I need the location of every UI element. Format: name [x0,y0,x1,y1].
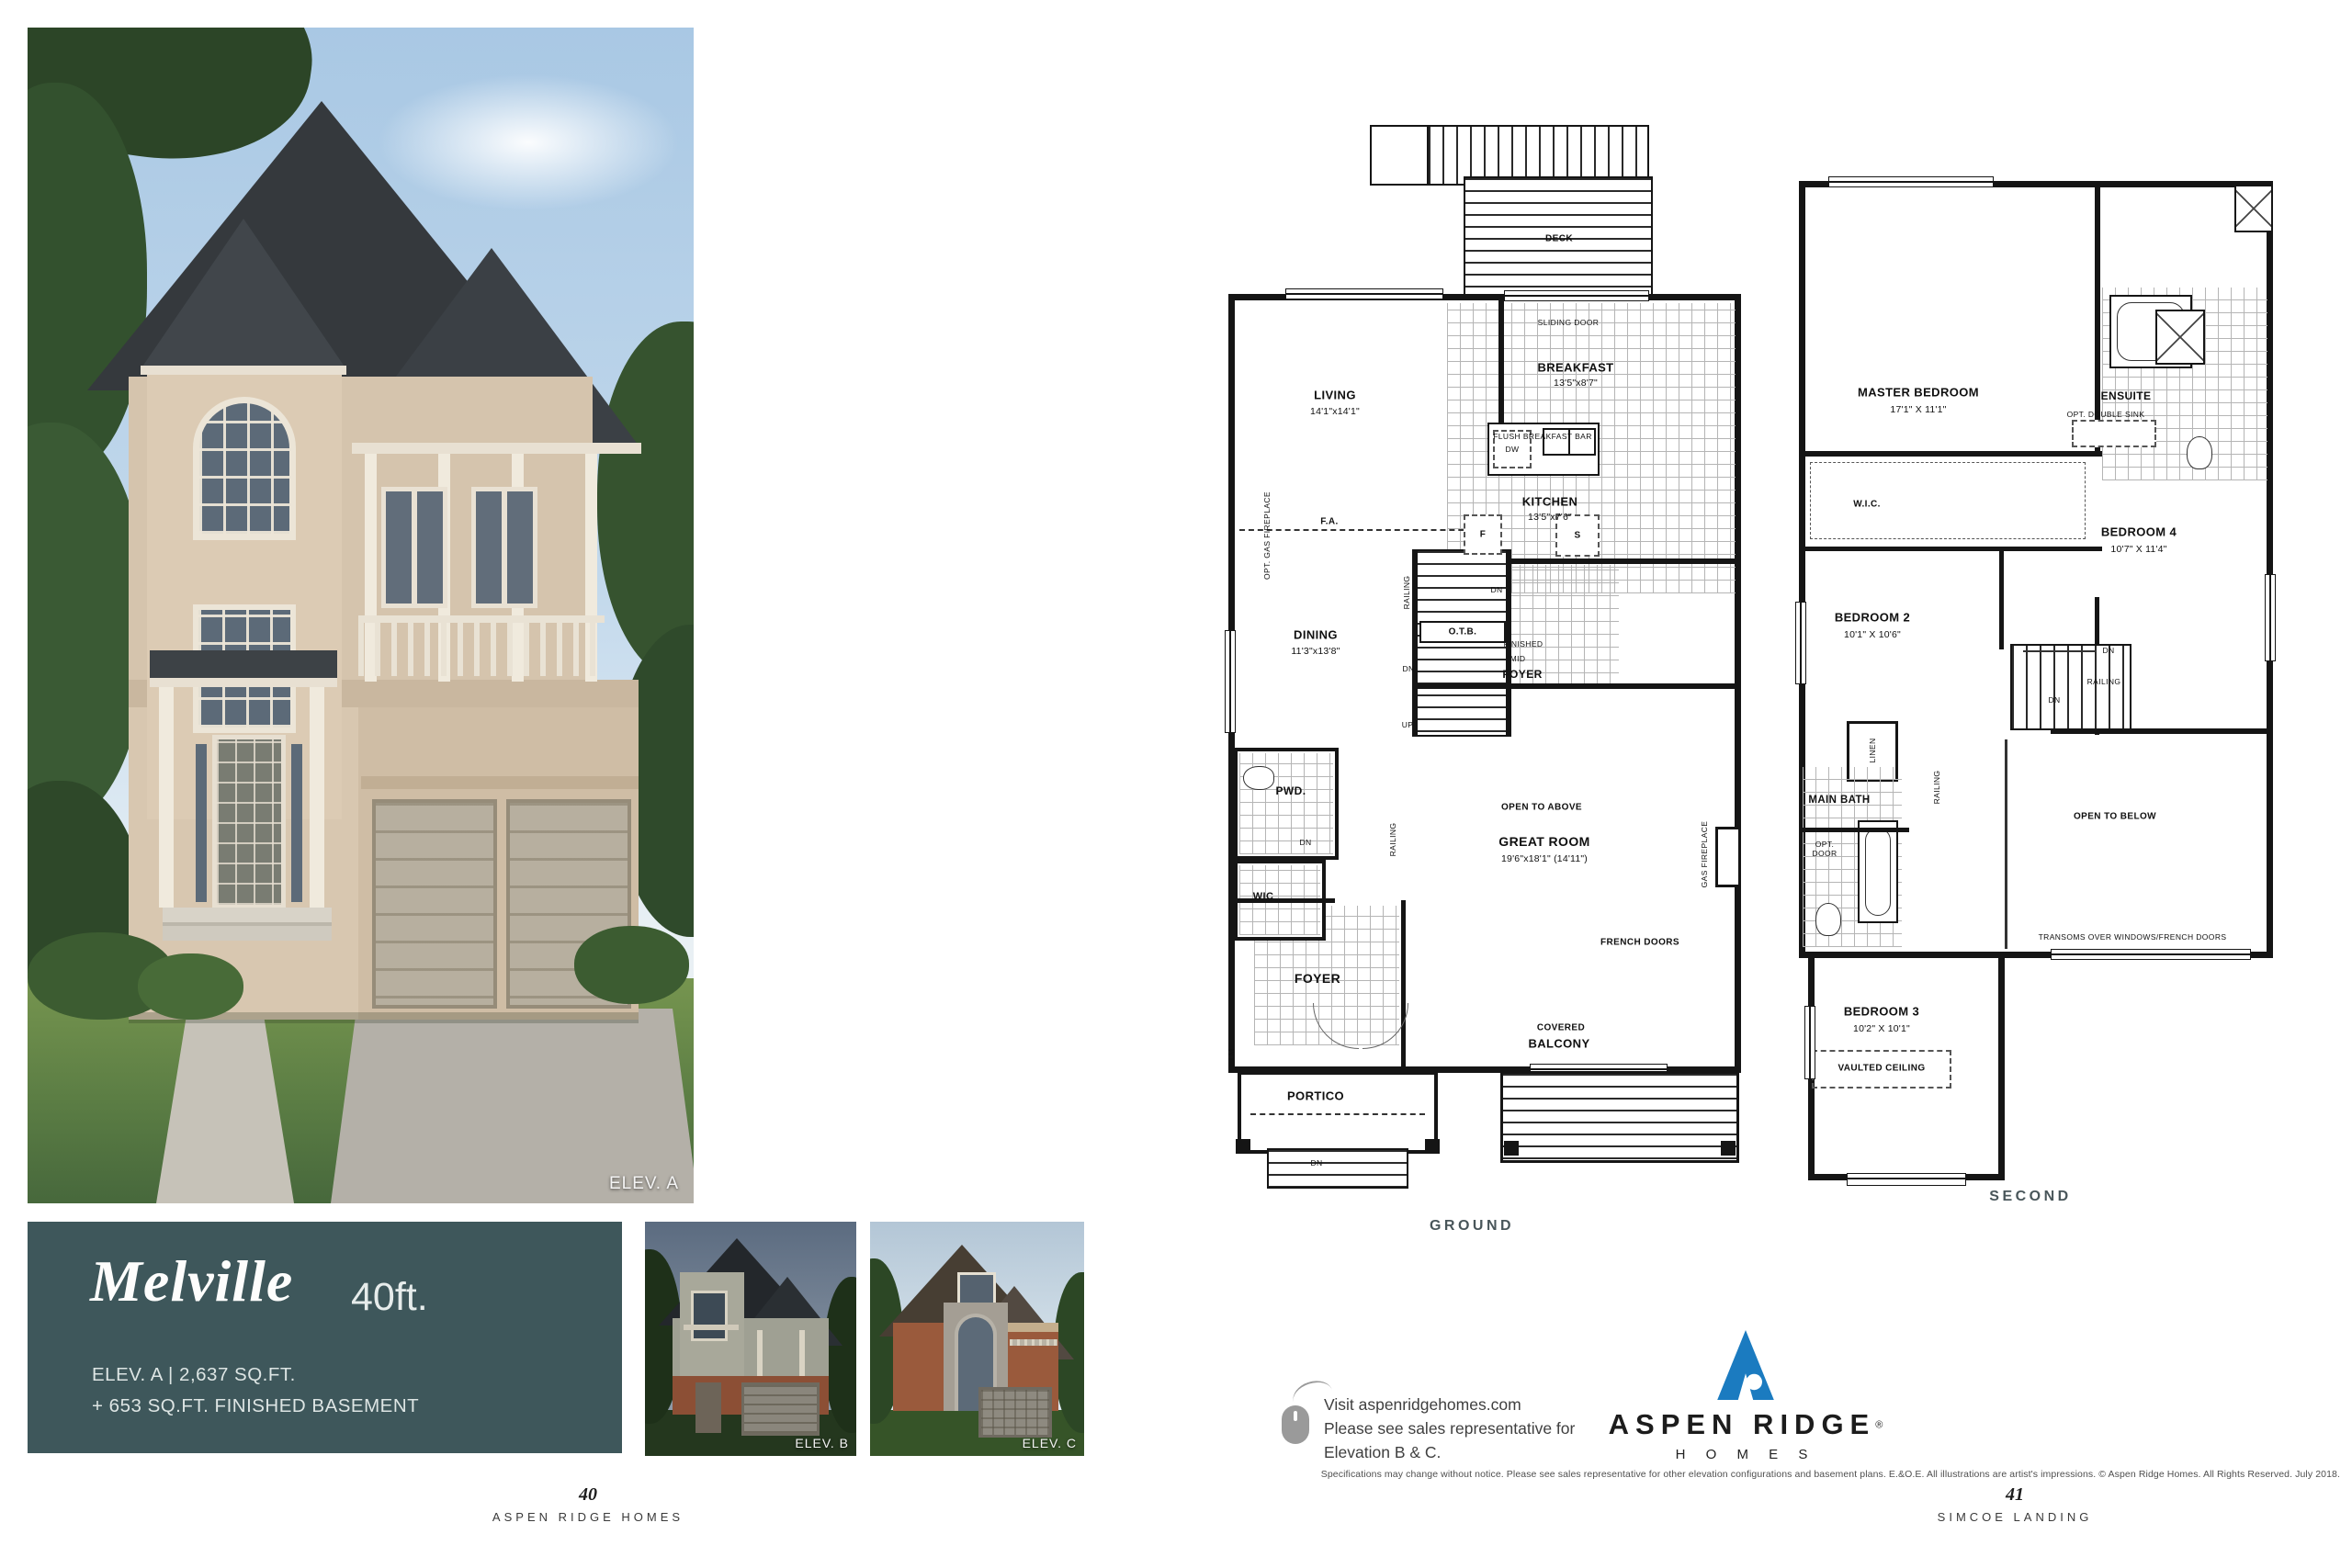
promo-line-2: Please see sales representative for [1324,1416,1575,1440]
label-finished: FINISHED [1504,639,1543,649]
page-number-right: 41 [2006,1484,2024,1506]
thumbnail-elev-b: ELEV. B [645,1222,856,1456]
porch-door [471,487,537,608]
balcony-post [1504,1141,1519,1156]
label-flush-breakfast-bar: FLUSH BREAKFAST BAR [1493,432,1592,441]
arched-window [193,397,296,540]
label-mid: MID [1510,654,1526,663]
upper-stairs [2010,644,2131,730]
house-illustration [78,101,648,1020]
transom-window [2051,949,2251,960]
gas-fireplace-box [1715,827,1741,887]
label-dn: DN [1490,585,1502,594]
model-size: 40ft. [351,1275,428,1320]
front-steps [163,908,332,941]
stair-landing [1370,125,1429,186]
garage-door [741,1382,820,1436]
label-dn: DN [1402,664,1414,673]
thumb-elevation-label: ELEV. C [1023,1436,1077,1450]
label-dishwasher: DW [1506,445,1520,454]
room-label-main-bath: MAIN BATH [1808,795,1870,806]
wall-segment [1234,898,1335,903]
porch-door [381,487,447,608]
room-dims-bedroom4: 10'7" X 11'4" [2110,544,2166,555]
label-door: DOOR [1812,849,1837,858]
logo-homes-text: H O M E S [1599,1447,1893,1462]
front-door [212,735,286,909]
label-mid-foyer: FOYER [1502,668,1542,681]
disclaimer-text: Specifications may change without notice… [1282,1469,2340,1480]
sidelight-window [291,744,302,902]
spec-line-2: + 653 SQ.FT. FINISHED BASEMENT [92,1395,419,1417]
tower-gable-roof-shape [141,219,346,369]
thumbnail-elev-c: ELEV. C [870,1222,1084,1456]
room-label-bedroom2: BEDROOM 2 [1835,611,1910,625]
garage-door [372,799,497,1009]
ground-floor-plan: DECK SLIDING DOOR BREAKFAST 13'5"x8'7" L… [1227,119,1755,1203]
toilet-fixture [1815,903,1841,936]
footer-site-left: ASPEN RIDGE HOMES [492,1510,684,1524]
promo-line-3: Elevation B & C. [1324,1440,1575,1464]
tub-basin [1865,828,1891,916]
wall-segment [1799,828,1909,832]
second-plan-title: SECOND [1989,1189,2071,1205]
room-label-breakfast: BREAKFAST [1537,361,1613,375]
label-railing: RAILING [1402,576,1411,610]
front-door [695,1382,721,1433]
vanity-opt-double-sink [2072,420,2156,447]
room-label-foyer: FOYER [1295,971,1340,986]
promo-line-1: Visit aspenridgehomes.com [1324,1393,1575,1416]
label-fa: F.A. [1320,517,1338,527]
label-french-doors: FRENCH DOORS [1600,938,1679,948]
hero-photo: ELEV. A [28,28,694,1203]
portico-column [310,687,324,908]
label-covered: COVERED [1537,1023,1585,1033]
label-opt-gas-fireplace: OPT. GAS FIREPLACE [1262,491,1272,580]
wall-segment [1999,548,2004,649]
room-dims-great-room: 19'6"x18'1" (14'11") [1501,853,1588,864]
portico-column [159,687,174,908]
registered-mark: ® [1875,1420,1883,1431]
page-number-left: 40 [579,1484,597,1506]
bay-window [1847,1173,1966,1186]
room-dims-bedroom2: 10'1" X 10'6" [1844,629,1901,640]
brick-wall [893,1323,944,1411]
room-dims-living: 14'1"x14'1" [1310,406,1360,417]
room-label-portico: PORTICO [1287,1089,1344,1103]
room-label-ensuite: ENSUITE [2101,389,2152,402]
aspen-ridge-logo-icon [1717,1330,1774,1400]
room-label-living: LIVING [1314,389,1356,402]
room-dims-breakfast: 13'5"x8'7" [1554,378,1598,389]
label-railing: RAILING [2087,677,2121,686]
wall-segment [1799,547,2102,551]
bush [138,953,243,1020]
label-lm: LM [1227,1049,1236,1061]
garage-trim [361,776,639,789]
porch-railing [358,615,605,623]
portico-roof [150,650,337,682]
window [1225,630,1236,733]
main-bath-tub [1858,820,1898,923]
title-panel: Melville 40ft. ELEV. A | 2,637 SQ.FT. + … [28,1222,622,1453]
railing-line [2005,739,2007,949]
garage-door [978,1387,1052,1438]
covered-balcony-boards [1500,1071,1739,1163]
balcony-railing [684,1325,739,1330]
porch-fascia [352,443,641,454]
tower-fascia [141,366,346,375]
label-vaulted-ceiling: VAULTED CEILING [1837,1064,1925,1074]
main-stairs [1416,549,1508,737]
window [1285,288,1443,299]
logo-brand-text: ASPEN RIDGE [1609,1408,1876,1440]
footer-site-right: SIMCOE LANDING [1938,1510,2093,1524]
portico-post [1425,1139,1440,1154]
shower-stall [2155,310,2205,365]
label-stove: S [1574,531,1580,541]
room-label-kitchen: KITCHEN [1522,495,1578,509]
promo-note: Visit aspenridgehomes.com Please see sal… [1282,1393,1612,1475]
balcony-post [1721,1141,1736,1156]
label-opt: OPT. [1815,840,1835,849]
label-fridge: F [1480,530,1487,540]
window [1828,176,1994,187]
room-label-balcony: BALCONY [1528,1037,1589,1051]
mouse-scroll [1294,1411,1297,1421]
room-dims-bedroom3: 10'2" X 10'1" [1853,1023,1910,1034]
portico-structure [1238,1071,1438,1154]
thumb-elevation-label: ELEV. B [795,1436,849,1450]
hero-elevation-label: ELEV. A [609,1174,679,1194]
ground-plan-title: GROUND [1430,1218,1514,1235]
room-label-deck: DECK [1545,234,1573,244]
room-dims-kitchen: 13'5"x7'6" [1528,512,1572,523]
label-up: UP [1402,720,1414,729]
room-label-master: MASTER BEDROOM [1858,386,1979,400]
room-label-wic: W.I.C. [1853,500,1881,510]
window [1804,1006,1815,1079]
portico-fascia [150,678,337,687]
aspen-ridge-logo: ASPEN RIDGE® H O M E S [1599,1330,1893,1468]
label-open-to-above: OPEN TO ABOVE [1501,803,1582,813]
model-name: Melville [90,1247,293,1315]
label-dn: DN [1299,838,1311,847]
label-railing: RAILING [1388,823,1397,857]
balcony-railing [1010,1339,1057,1346]
room-label-powder: PWD. [1276,784,1306,797]
label-dn: DN [1310,1158,1322,1168]
label-transoms: TRANSOMS OVER WINDOWS/FRENCH DOORS [2039,932,2227,942]
spec-line-1: ELEV. A | 2,637 SQ.FT. [92,1364,296,1386]
portico-post [1236,1139,1250,1154]
toilet-fixture [1243,766,1274,790]
room-label-bedroom4: BEDROOM 4 [2101,525,2177,539]
label-gas-fireplace: GAS FIREPLACE [1700,821,1709,888]
front-steps [1267,1148,1408,1189]
wall-segment [1799,451,2102,457]
stair-arrow-line [2023,650,2097,652]
window [691,1291,728,1341]
window [2265,574,2276,661]
label-otb: O.T.B. [1449,627,1477,637]
label-dn: DN [2102,646,2114,655]
bush [574,926,689,1004]
room-label-dining: DINING [1294,628,1338,642]
room-label-great-room: GREAT ROOM [1498,834,1589,849]
room-label-bedroom3: BEDROOM 3 [1844,1005,1919,1019]
label-open-to-below: OPEN TO BELOW [2074,812,2156,822]
label-linen: LINEN [1868,738,1877,762]
room-dims-dining: 11'3"x13'8" [1291,646,1340,657]
portico-dash-line [1250,1113,1425,1115]
room-label-wic: WIC [1253,891,1274,902]
closet-rod [1810,462,2086,539]
toilet-fixture [2187,436,2212,469]
label-opt-double-sink: OPT. DOUBLE SINK [2067,410,2145,419]
second-floor-plan: MASTER BEDROOM 17'1" X 11'1" ENSUITE OPT… [1792,179,2320,1203]
label-railing: RAILING [1932,771,1941,805]
flat-arch-line [1239,529,1500,531]
porch-balusters [358,623,605,676]
sliding-door-window [1504,290,1649,301]
shower-stall [2234,185,2273,232]
window [1795,602,1806,684]
sidelight-window [196,744,207,902]
room-dims-master: 17'1" X 11'1" [1890,404,1946,415]
wall-segment [1416,683,1737,689]
brochure-page: { "colors": { "teal_panel": "#3e575b", "… [0,0,2352,1568]
wall-segment [1401,900,1406,1071]
label-sliding-door: SLIDING DOOR [1538,318,1600,327]
label-dn: DN [2048,695,2060,705]
